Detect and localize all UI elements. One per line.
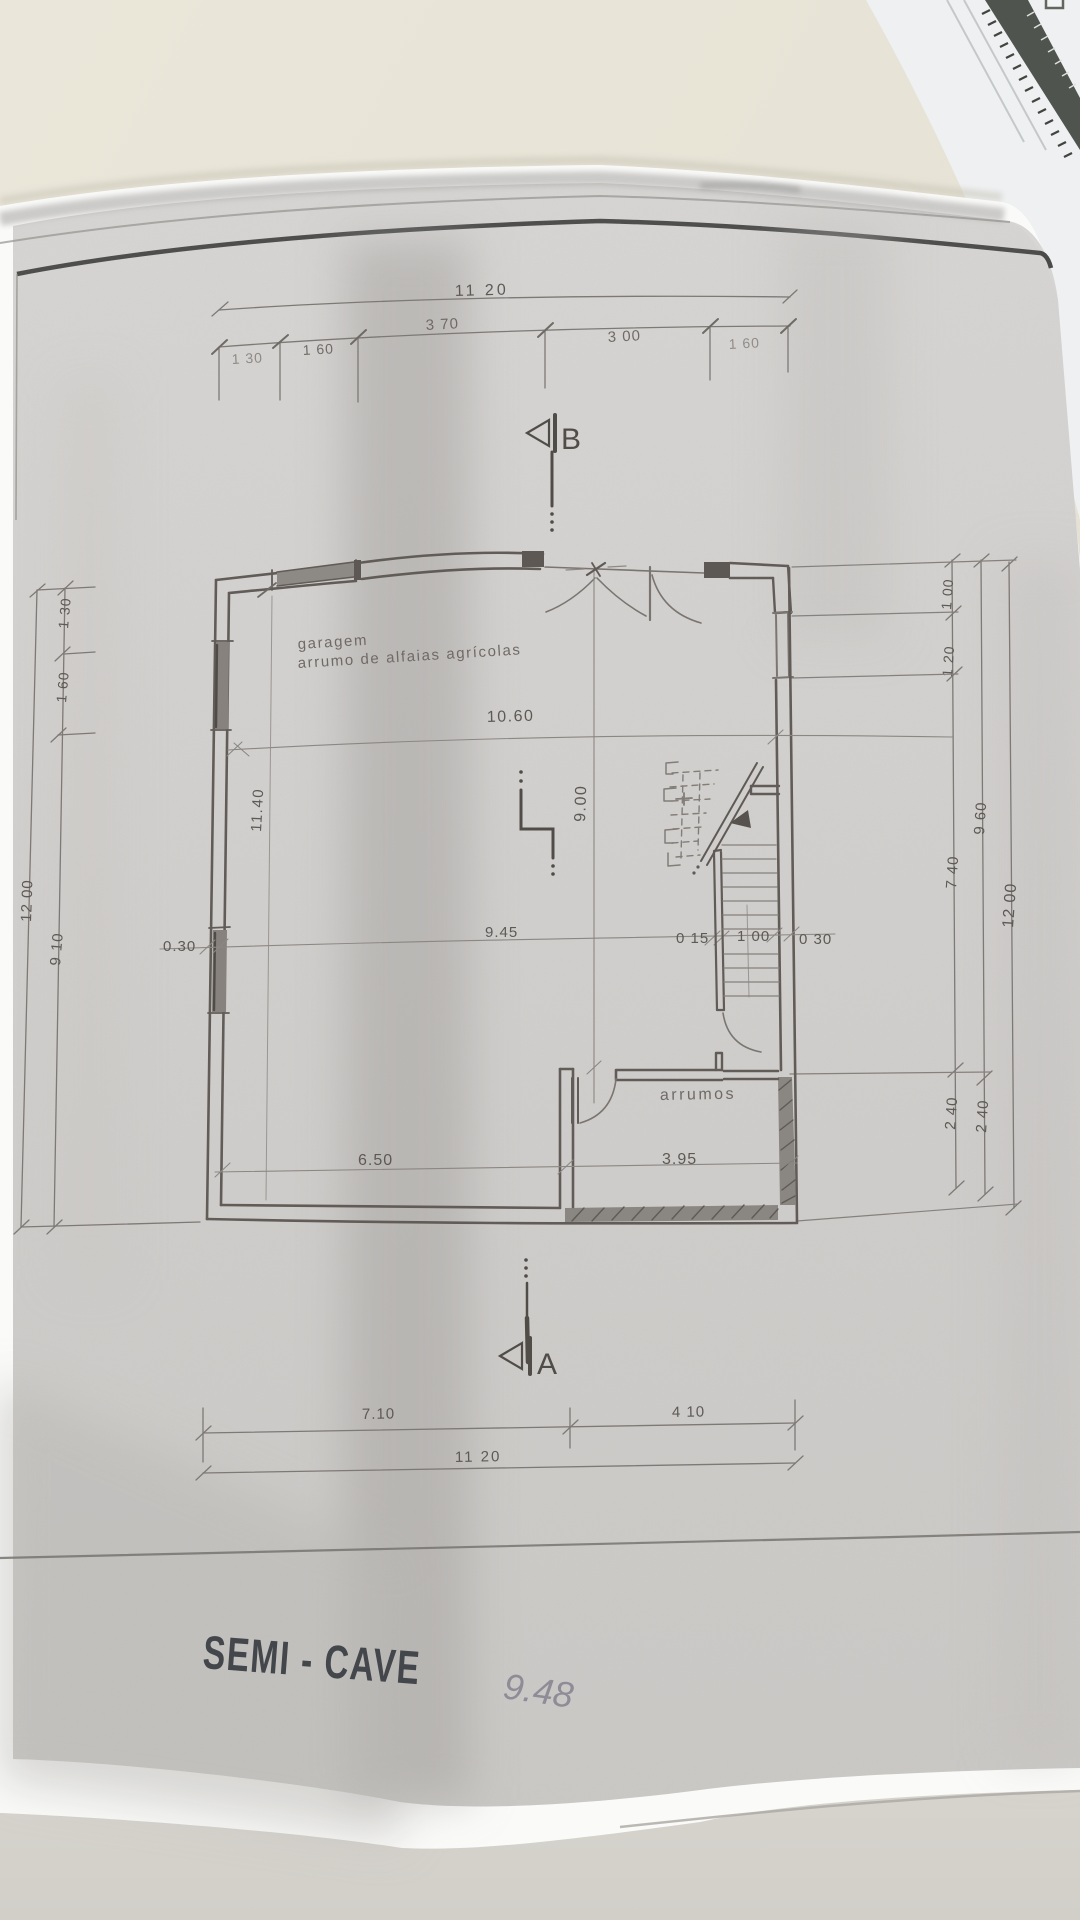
- svg-text:2 40: 2 40: [942, 1096, 961, 1130]
- svg-text:0 30: 0 30: [799, 931, 832, 948]
- svg-text:1 30: 1 30: [55, 597, 74, 630]
- svg-text:9 60: 9 60: [971, 801, 990, 835]
- svg-text:3 70: 3 70: [425, 315, 459, 334]
- svg-text:10.60: 10.60: [487, 708, 535, 726]
- svg-text:1 30: 1 30: [231, 349, 263, 367]
- svg-text:9 10: 9 10: [47, 932, 67, 967]
- svg-text:arrumos: arrumos: [660, 1086, 736, 1104]
- svg-text:7.10: 7.10: [362, 1405, 395, 1423]
- svg-text:4 10: 4 10: [672, 1403, 705, 1421]
- svg-text:9.00: 9.00: [572, 784, 590, 822]
- svg-text:6.50: 6.50: [358, 1152, 393, 1169]
- svg-text:11 20: 11 20: [455, 282, 509, 300]
- svg-text:9.45: 9.45: [485, 924, 518, 941]
- svg-text:0 15: 0 15: [676, 930, 709, 947]
- svg-text:1 60: 1 60: [302, 340, 334, 358]
- svg-text:A: A: [537, 1348, 557, 1381]
- svg-text:2 40: 2 40: [973, 1099, 992, 1133]
- svg-text:7 40: 7 40: [943, 855, 962, 889]
- svg-text:12 00: 12 00: [18, 879, 36, 922]
- svg-text:1 00: 1 00: [737, 928, 770, 945]
- svg-text:0.30: 0.30: [163, 938, 196, 955]
- svg-text:11 20: 11 20: [455, 1448, 502, 1466]
- svg-text:1 00: 1 00: [938, 578, 956, 610]
- svg-text:1 60: 1 60: [53, 671, 72, 704]
- svg-text:3.95: 3.95: [662, 1151, 697, 1168]
- svg-text:3 00: 3 00: [607, 327, 641, 346]
- svg-text:1 20: 1 20: [939, 645, 957, 677]
- svg-text:12 00: 12 00: [1000, 882, 1020, 928]
- svg-text:11.40: 11.40: [248, 787, 267, 832]
- svg-text:1 60: 1 60: [728, 334, 760, 352]
- svg-text:B: B: [561, 423, 581, 456]
